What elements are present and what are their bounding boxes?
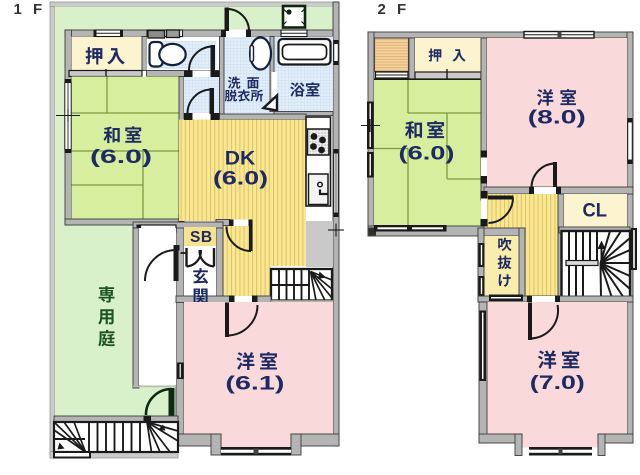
svg-text:SB: SB [190, 229, 213, 246]
svg-text:(6.0): (6.0) [213, 169, 268, 190]
svg-text:(6.0): (6.0) [90, 147, 152, 168]
svg-text:(8.0): (8.0) [528, 108, 586, 129]
svg-text:1 F: 1 F [14, 1, 46, 18]
svg-text:(6.1): (6.1) [225, 374, 284, 395]
svg-text:DK: DK [225, 148, 256, 169]
svg-text:(7.0): (7.0) [530, 373, 585, 394]
svg-text:(6.0): (6.0) [399, 144, 455, 165]
svg-text:CL: CL [583, 200, 608, 221]
svg-text:2 F: 2 F [378, 1, 410, 18]
